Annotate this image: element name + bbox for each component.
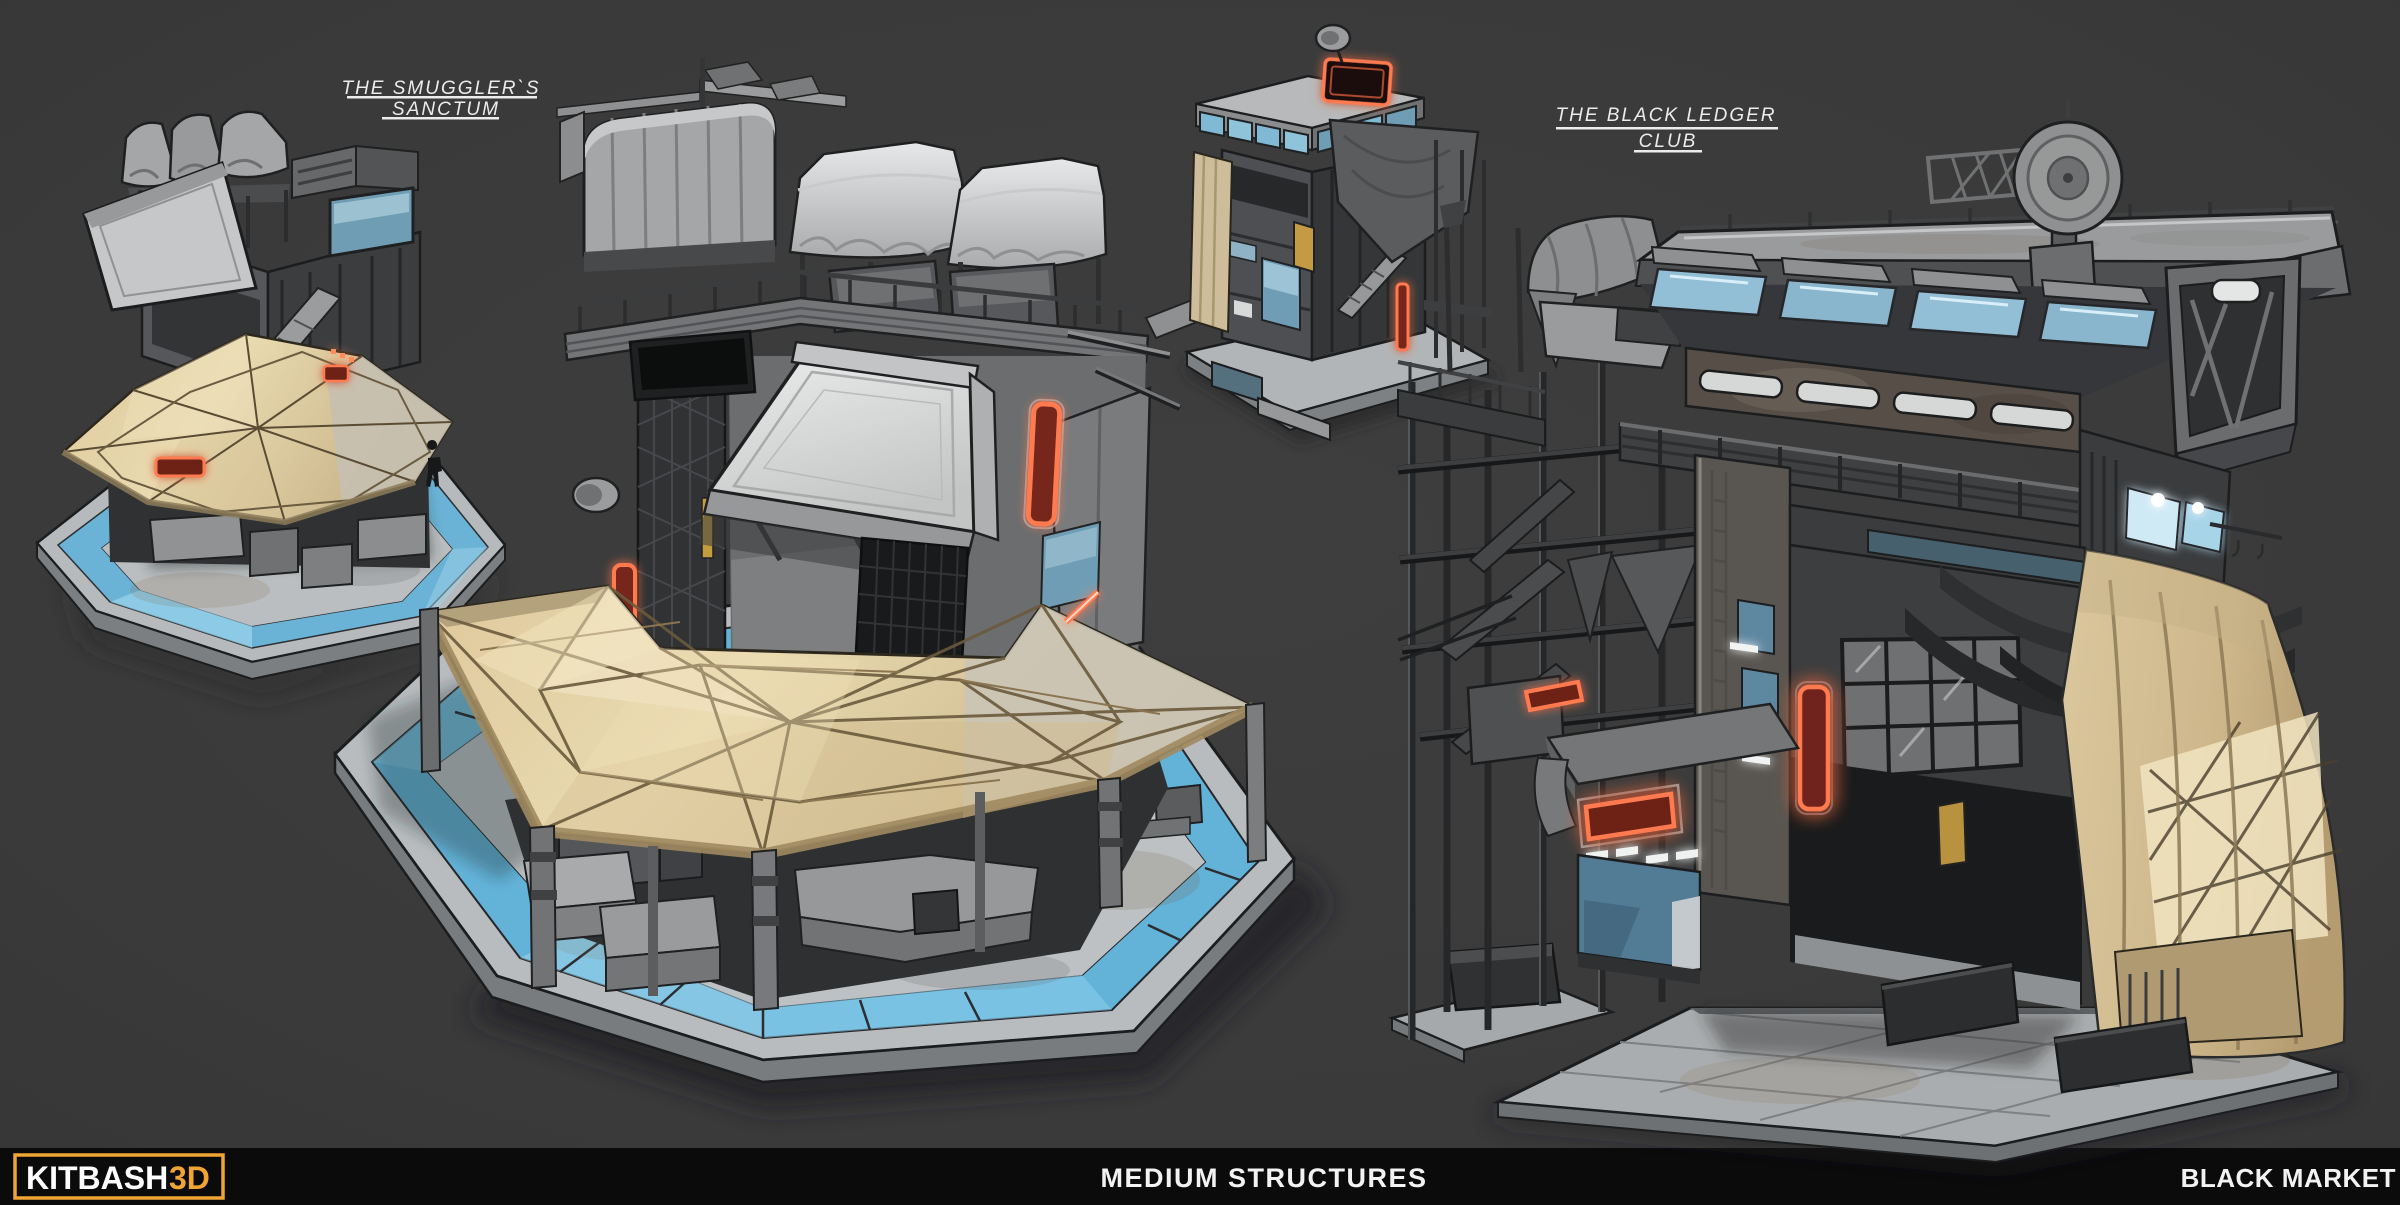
svg-text:CLUB: CLUB <box>1639 131 1698 152</box>
svg-text:THE BLACK LEDGER: THE BLACK LEDGER <box>1556 105 1777 126</box>
svg-text:KITBASH: KITBASH <box>26 1160 168 1196</box>
svg-text:THE SMUGGLER`S: THE SMUGGLER`S <box>341 78 540 99</box>
svg-text:MEDIUM STRUCTURES: MEDIUM STRUCTURES <box>1101 1163 1428 1193</box>
svg-text:SANCTUM: SANCTUM <box>392 99 500 120</box>
svg-text:3D: 3D <box>169 1160 210 1196</box>
svg-text:BLACK MARKET: BLACK MARKET <box>2181 1163 2396 1193</box>
